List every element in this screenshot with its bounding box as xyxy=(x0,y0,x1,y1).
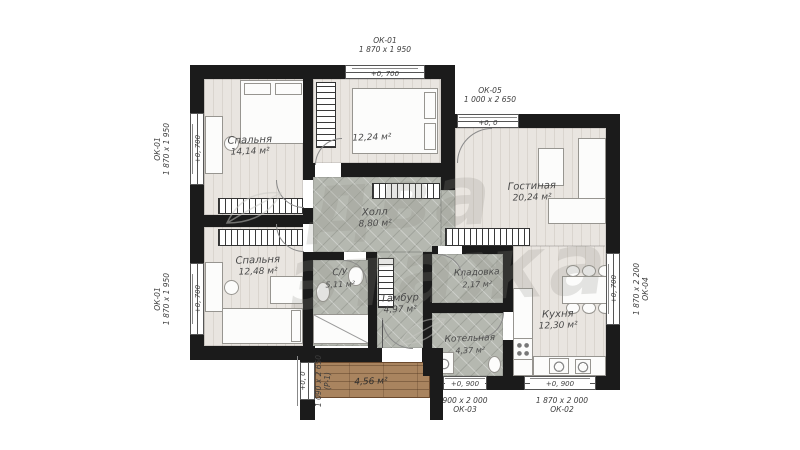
door-gap-storage xyxy=(438,246,462,254)
label-living: Гостиная 20,24 м² xyxy=(482,178,583,206)
opening-code: ОК-04 xyxy=(641,244,650,334)
opening-size: 1 870 х 1 950 xyxy=(162,104,171,194)
label-storage: Кладовка 2,17 м² xyxy=(437,267,518,292)
boiler-sink xyxy=(488,356,501,373)
label-window-ok01-left-top: ОК-01 1 870 х 1 950 xyxy=(153,104,175,194)
sofa xyxy=(578,138,606,200)
opening-code: ОК-01 xyxy=(345,36,425,45)
door-gap-bedroom-3 xyxy=(303,224,313,252)
kitchen-counter xyxy=(533,356,606,376)
level-ok04: +0, 700 xyxy=(608,264,618,314)
label-terrace: 4,56 м² xyxy=(336,376,406,390)
room-area: 4,56 м² xyxy=(336,376,406,390)
opening-code: ОК-01 xyxy=(153,104,162,194)
label-wc: С/У 5,11 м² xyxy=(305,267,376,292)
level-ok01-top: +0, 700 xyxy=(352,68,418,78)
opening-code: ОК-05 xyxy=(448,86,532,95)
label-bedroom-3: Спальня 12,48 м² xyxy=(208,252,309,280)
level-ok05: +0, 0 xyxy=(459,117,517,127)
label-door-p1: 1 090 х 2 650 (Р-1) xyxy=(314,336,334,426)
label-window-ok01-top: ОК-01 1 870 х 1 950 xyxy=(345,36,425,55)
door-gap-bedroom-1 xyxy=(303,180,313,208)
stove xyxy=(513,338,533,360)
door-gap-bedroom-2 xyxy=(315,163,341,177)
wardrobe xyxy=(372,183,440,199)
pillow xyxy=(244,83,271,95)
opening-size: 1 000 х 2 650 xyxy=(448,95,532,104)
level-p1: +0, 0 xyxy=(297,356,307,406)
dresser xyxy=(270,276,303,304)
floor-plan-canvas: два этажа Спальня 14,14 м² 12,24 м² Гост… xyxy=(0,0,800,450)
opening-size: 1 870 х 2 000 xyxy=(522,396,602,405)
door-leaf xyxy=(382,320,383,348)
opening-code: (Р-1) xyxy=(323,336,332,426)
chair xyxy=(224,280,239,295)
pillow xyxy=(424,92,436,119)
pillow xyxy=(275,83,302,95)
wall-bedroom1-bedroom2 xyxy=(303,79,313,163)
level-ok01-left-bottom: +0, 700 xyxy=(192,274,202,324)
label-hall: Холл 8,80 м² xyxy=(325,204,426,232)
leaf-ornament xyxy=(225,185,287,227)
opening-size: 1 090 х 2 650 xyxy=(314,336,323,426)
wardrobe xyxy=(445,228,530,246)
label-window-ok02: 1 870 х 2 000 ОК-02 xyxy=(522,396,602,415)
opening-size: 1 870 х 1 950 xyxy=(345,45,425,54)
wall-bottom-left xyxy=(190,346,300,360)
label-boiler: Котельная 4,37 м² xyxy=(430,333,511,358)
label-bedroom-1: Спальня 14,14 м² xyxy=(200,132,301,160)
wall-right xyxy=(606,114,620,390)
pillow xyxy=(291,310,301,342)
wall-kitchen-left xyxy=(503,246,513,376)
opening-size: 1 870 х 2 200 xyxy=(632,244,641,334)
label-window-ok03: 900 х 2 000 ОК-03 xyxy=(425,396,505,415)
dishwasher xyxy=(575,359,591,374)
opening-size: 1 870 х 1 950 xyxy=(162,254,171,344)
dining-table xyxy=(562,276,608,304)
label-tambour: Тамбур 4,97 м² xyxy=(360,291,441,318)
opening-code: ОК-03 xyxy=(425,405,505,414)
label-window-ok05: ОК-05 1 000 х 2 650 xyxy=(448,86,532,105)
opening-code: ОК-01 xyxy=(153,254,162,344)
level-ok01-left-top: +0, 700 xyxy=(192,124,202,174)
label-kitchen: Кухня 12,30 м² xyxy=(518,307,599,334)
kitchen-sink xyxy=(549,358,569,374)
door-gap-wc xyxy=(344,252,366,260)
opening-size: 900 х 2 000 xyxy=(425,396,505,405)
label-window-ok01-left-bottom: ОК-01 1 870 х 1 950 xyxy=(153,254,175,344)
opening-code: ОК-02 xyxy=(522,405,602,414)
wall-hall-living xyxy=(441,128,455,190)
level-ok03: +0, 900 xyxy=(445,378,485,388)
pillow xyxy=(424,123,436,150)
label-window-ok04: 1 870 х 2 200 ОК-04 xyxy=(632,244,654,334)
level-ok02: +0, 900 xyxy=(530,378,590,388)
entrance-door-gap xyxy=(382,348,422,362)
